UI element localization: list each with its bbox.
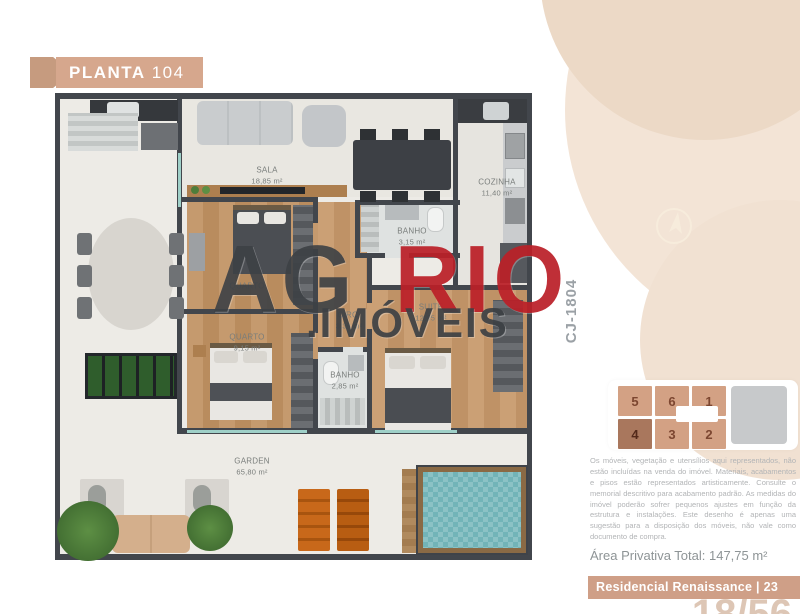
cabinet <box>141 123 178 150</box>
chair <box>169 265 184 287</box>
desk <box>189 233 205 271</box>
compass-icon <box>652 204 696 248</box>
room-area: 9,15 m² <box>229 343 264 353</box>
room-name: COZINHA <box>478 178 515 189</box>
keyplan-unit: 5 <box>618 386 652 416</box>
foosball-table <box>85 353 177 399</box>
room-area: 11,40 m² <box>478 188 515 198</box>
chair <box>169 297 184 319</box>
chair <box>360 191 376 202</box>
disclaimer-text: Os móveis, vegetação e utensílios aqui r… <box>590 456 796 543</box>
chair <box>424 191 440 202</box>
wall <box>55 93 60 560</box>
sun-lounger <box>298 489 330 551</box>
bed-throw <box>385 388 451 423</box>
chair <box>360 129 376 140</box>
private-area-total: Área Privativa Total: 147,75 m² <box>590 548 768 563</box>
wall <box>182 197 318 202</box>
chair <box>169 233 184 255</box>
room-label-sala: SALA 18,85 m² <box>251 166 282 187</box>
room-name: SALA <box>251 166 282 177</box>
dining-table <box>353 140 451 190</box>
footer-bar: Residencial Renaissance | 23 <box>588 576 800 599</box>
pool <box>418 467 526 553</box>
room-name: BANHO <box>330 371 359 382</box>
room-area: 65,80 m² <box>234 467 269 477</box>
keyplan: 5 6 1 4 3 2 <box>608 380 798 450</box>
tv <box>220 187 305 194</box>
chair <box>77 233 92 255</box>
nightstand <box>193 345 206 357</box>
chair <box>77 297 92 319</box>
armchair <box>302 105 346 147</box>
room-label-garden: GARDEN 65,80 m² <box>234 457 269 478</box>
pillow <box>264 212 286 224</box>
stove <box>505 133 525 159</box>
outdoor-sofa <box>112 515 190 553</box>
outdoor-dining-table <box>88 218 174 330</box>
keyplan-unit-highlighted: 4 <box>618 419 652 449</box>
chair <box>424 129 440 140</box>
plan-title-label: PLANTA <box>69 63 146 83</box>
glass-door <box>178 153 181 207</box>
sofa <box>197 101 293 145</box>
chair <box>392 191 408 202</box>
plan-title-number: 104 <box>152 63 185 83</box>
room-label-banho2: BANHO 2,85 m² <box>330 371 359 392</box>
bed-throw <box>210 383 272 401</box>
oven <box>505 198 525 224</box>
keyplan-unit: 2 <box>692 419 726 449</box>
room-label-cozinha: COZINHA 11,40 m² <box>478 178 515 199</box>
bathroom-sink <box>348 355 364 371</box>
keyplan-unit: 3 <box>655 419 689 449</box>
shower <box>361 205 379 252</box>
bathroom-vanity <box>385 205 419 220</box>
chair <box>392 129 408 140</box>
keyplan-common-area <box>731 386 787 444</box>
glass-door <box>375 430 457 433</box>
pillow <box>420 356 446 369</box>
pillow <box>237 212 259 224</box>
bush <box>57 501 119 561</box>
glass-door <box>187 430 307 433</box>
room-area: 18,85 m² <box>251 176 282 186</box>
watermark-imoveis: .IMÓVEIS <box>306 302 509 344</box>
ac-unit <box>68 113 138 151</box>
wardrobe <box>291 333 313 428</box>
plant <box>191 186 199 194</box>
door-banho2 <box>343 347 363 352</box>
wall <box>55 554 532 560</box>
bush <box>187 505 233 551</box>
sun-lounger <box>337 489 369 551</box>
shower <box>320 398 365 425</box>
keyplan-core <box>676 406 718 422</box>
room-name: GARDEN <box>234 457 269 468</box>
plan-title-ribbon: PLANTA 104 <box>56 57 203 88</box>
room-area: 2,85 m² <box>330 381 359 391</box>
pillow <box>389 356 415 369</box>
chair <box>77 265 92 287</box>
brochure-page: PLANTA 104 <box>0 0 800 614</box>
kitchen-sink <box>483 102 509 120</box>
plant <box>202 186 210 194</box>
room-label-quarto2: QUARTO 9,15 m² <box>229 333 264 354</box>
room-name: QUARTO <box>229 333 264 344</box>
